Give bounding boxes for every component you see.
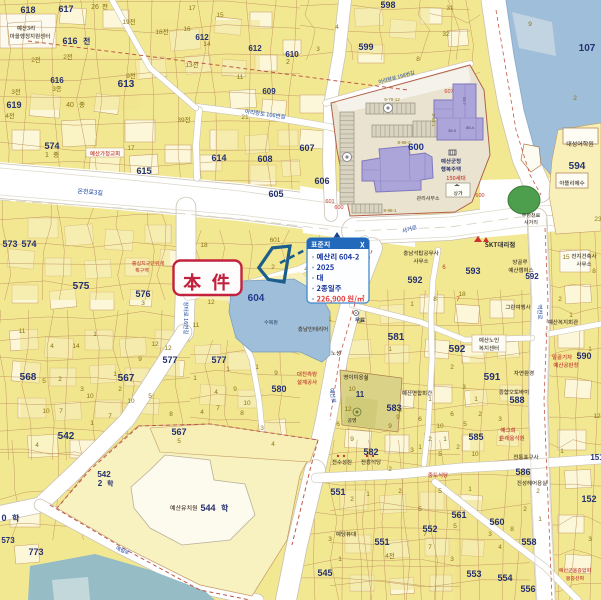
svg-text:10: 10 xyxy=(86,393,94,400)
svg-text:15: 15 xyxy=(216,12,224,19)
svg-text:9-79-12: 9-79-12 xyxy=(384,97,400,102)
svg-text:4: 4 xyxy=(335,24,339,31)
svg-text:6: 6 xyxy=(450,411,454,418)
svg-text:12: 12 xyxy=(151,341,159,348)
svg-text:8: 8 xyxy=(240,410,244,417)
svg-text:4: 4 xyxy=(35,442,39,449)
svg-text:11: 11 xyxy=(193,322,200,329)
svg-text:599: 599 xyxy=(358,42,373,52)
svg-text:5: 5 xyxy=(463,421,467,428)
svg-text:568: 568 xyxy=(20,372,37,383)
svg-text:592: 592 xyxy=(449,344,466,355)
svg-text:7: 7 xyxy=(59,408,63,415)
svg-text:616: 616 xyxy=(50,76,64,85)
svg-text:1: 1 xyxy=(45,152,49,159)
svg-text:567: 567 xyxy=(118,373,135,384)
svg-text:9: 9 xyxy=(528,21,532,28)
svg-text:1: 1 xyxy=(410,301,414,308)
svg-text:606: 606 xyxy=(314,176,329,186)
svg-text:9: 9 xyxy=(350,436,354,443)
svg-text:3: 3 xyxy=(410,447,414,454)
svg-text:613: 613 xyxy=(118,79,135,90)
svg-text:1: 1 xyxy=(428,396,432,403)
svg-text:4: 4 xyxy=(271,441,275,448)
svg-text:580: 580 xyxy=(271,384,286,394)
svg-text:8: 8 xyxy=(510,526,514,533)
svg-text:585: 585 xyxy=(468,432,483,442)
svg-text:3: 3 xyxy=(588,536,592,543)
svg-text:53.7: 53.7 xyxy=(462,97,467,106)
svg-text:19전: 19전 xyxy=(122,17,135,26)
svg-text:619: 619 xyxy=(6,100,21,110)
svg-text:17: 17 xyxy=(127,145,135,152)
svg-text:554: 554 xyxy=(497,573,512,583)
svg-text:8: 8 xyxy=(169,411,173,418)
svg-text:12: 12 xyxy=(344,406,352,413)
svg-text:8: 8 xyxy=(592,268,596,275)
svg-text:12: 12 xyxy=(164,345,172,352)
svg-text:12: 12 xyxy=(593,413,601,420)
svg-text:556: 556 xyxy=(520,584,535,594)
svg-text:1: 1 xyxy=(443,436,447,443)
svg-text:2: 2 xyxy=(573,95,577,102)
svg-text:1: 1 xyxy=(498,436,502,443)
svg-text:575: 575 xyxy=(73,281,90,292)
svg-text:3: 3 xyxy=(328,536,332,543)
svg-text:1: 1 xyxy=(418,444,422,451)
svg-text:604: 604 xyxy=(248,293,265,304)
svg-text:573: 573 xyxy=(1,536,15,545)
svg-text:39전: 39전 xyxy=(177,115,190,124)
svg-text:1: 1 xyxy=(193,375,197,382)
svg-text:588: 588 xyxy=(509,395,524,405)
svg-text:3: 3 xyxy=(488,531,492,538)
svg-text:4: 4 xyxy=(50,343,54,350)
svg-text:608: 608 xyxy=(257,154,272,164)
svg-text:3: 3 xyxy=(364,376,368,383)
svg-text:558: 558 xyxy=(521,537,536,547)
svg-text:592: 592 xyxy=(525,272,539,281)
svg-text:1: 1 xyxy=(474,396,478,403)
svg-text:18: 18 xyxy=(200,242,208,249)
svg-text:586: 586 xyxy=(515,467,530,477)
svg-text:2: 2 xyxy=(98,479,103,488)
svg-text:2: 2 xyxy=(286,59,290,66)
svg-text:9: 9 xyxy=(233,386,237,393)
svg-text:574: 574 xyxy=(21,239,36,249)
svg-text:542: 542 xyxy=(97,470,111,479)
svg-text:577: 577 xyxy=(211,355,226,365)
svg-text:609: 609 xyxy=(262,87,276,96)
svg-text:601: 601 xyxy=(325,199,334,205)
svg-text:573: 573 xyxy=(2,239,17,249)
svg-text:11: 11 xyxy=(356,390,365,399)
svg-text:6: 6 xyxy=(336,421,340,428)
svg-text:23: 23 xyxy=(594,216,601,223)
svg-text:2: 2 xyxy=(536,488,540,495)
svg-text:3: 3 xyxy=(450,556,454,563)
svg-text:617: 617 xyxy=(58,4,73,14)
svg-text:2전: 2전 xyxy=(63,52,73,61)
svg-text:3: 3 xyxy=(260,425,264,432)
svg-text:39.3: 39.3 xyxy=(448,128,457,133)
svg-text:3: 3 xyxy=(316,46,320,53)
svg-text:4: 4 xyxy=(498,544,502,551)
svg-text:553: 553 xyxy=(466,569,481,579)
svg-text:600: 600 xyxy=(475,193,484,199)
svg-text:2: 2 xyxy=(428,436,432,443)
svg-text:544: 544 xyxy=(200,503,215,513)
svg-text:593: 593 xyxy=(465,266,480,276)
svg-text:5: 5 xyxy=(418,506,422,513)
svg-text:2전: 2전 xyxy=(31,55,41,64)
svg-text:2: 2 xyxy=(450,364,454,371)
svg-text:2: 2 xyxy=(523,506,527,513)
svg-text:9전: 9전 xyxy=(126,71,136,80)
svg-text:551: 551 xyxy=(374,537,389,547)
svg-text:601: 601 xyxy=(270,237,281,244)
svg-text:21: 21 xyxy=(241,114,249,121)
svg-text:10: 10 xyxy=(42,408,50,415)
svg-text:2: 2 xyxy=(58,376,62,383)
svg-text:610: 610 xyxy=(285,50,299,59)
svg-text:1: 1 xyxy=(90,420,94,427)
svg-text:8-98-1: 8-98-1 xyxy=(383,208,397,213)
svg-text:3: 3 xyxy=(141,300,145,307)
svg-text:3: 3 xyxy=(80,386,84,393)
svg-text:1: 1 xyxy=(560,448,564,455)
svg-text:9: 9 xyxy=(396,414,400,421)
svg-text:542: 542 xyxy=(58,431,75,442)
svg-text:581: 581 xyxy=(388,332,405,343)
svg-text:607: 607 xyxy=(444,89,453,95)
svg-text:16: 16 xyxy=(183,26,191,33)
svg-text:2: 2 xyxy=(388,466,392,473)
svg-text:4전: 4전 xyxy=(385,551,395,560)
svg-text:40: 40 xyxy=(66,102,74,109)
svg-text:5: 5 xyxy=(438,488,442,495)
svg-text:2: 2 xyxy=(558,296,562,303)
svg-text:2: 2 xyxy=(118,386,122,393)
svg-text:1: 1 xyxy=(113,371,117,378)
svg-text:3전: 3전 xyxy=(11,87,21,96)
svg-text:7: 7 xyxy=(423,531,427,538)
svg-text:18전: 18전 xyxy=(155,27,168,36)
svg-text:10: 10 xyxy=(471,451,479,458)
svg-text:6: 6 xyxy=(418,416,422,423)
svg-text:10: 10 xyxy=(243,400,251,407)
svg-text:31: 31 xyxy=(446,5,454,12)
svg-text:14: 14 xyxy=(203,41,211,48)
svg-text:5: 5 xyxy=(453,523,457,530)
svg-text:576: 576 xyxy=(135,289,150,299)
svg-text:151: 151 xyxy=(590,453,601,462)
svg-text:616: 616 xyxy=(62,36,77,46)
svg-text:594: 594 xyxy=(569,161,586,172)
svg-text:10: 10 xyxy=(127,398,135,405)
svg-text:615: 615 xyxy=(136,166,151,176)
svg-text:2: 2 xyxy=(456,444,460,451)
svg-text:5: 5 xyxy=(148,393,152,400)
svg-text:1: 1 xyxy=(569,312,573,319)
svg-text:614: 614 xyxy=(211,153,226,163)
svg-text:1: 1 xyxy=(588,346,592,353)
svg-text:3: 3 xyxy=(462,384,466,391)
svg-text:1: 1 xyxy=(538,516,542,523)
svg-text:600: 600 xyxy=(334,205,343,211)
svg-text:598: 598 xyxy=(380,0,395,10)
svg-text:545: 545 xyxy=(317,568,332,578)
svg-text:12: 12 xyxy=(207,299,215,306)
svg-text:11: 11 xyxy=(237,74,244,81)
svg-text:2: 2 xyxy=(398,488,402,495)
svg-text:9: 9 xyxy=(274,370,278,377)
svg-text:2: 2 xyxy=(350,496,354,503)
svg-text:4: 4 xyxy=(200,409,204,416)
svg-text:5: 5 xyxy=(438,451,442,458)
svg-text:26: 26 xyxy=(91,4,99,11)
svg-text:1: 1 xyxy=(388,346,392,353)
svg-text:10: 10 xyxy=(436,423,444,430)
svg-text:5: 5 xyxy=(42,378,46,385)
svg-text:15: 15 xyxy=(562,254,570,261)
svg-text:8-98-2: 8-98-2 xyxy=(397,140,411,145)
svg-text:618: 618 xyxy=(20,5,35,15)
svg-text:773: 773 xyxy=(28,547,43,557)
svg-text:1: 1 xyxy=(468,486,472,493)
svg-text:9: 9 xyxy=(388,423,392,430)
svg-text:1: 1 xyxy=(328,316,332,323)
svg-text:607: 607 xyxy=(299,143,314,153)
svg-text:4: 4 xyxy=(214,389,218,396)
svg-text:1: 1 xyxy=(255,364,259,371)
svg-text:17: 17 xyxy=(188,5,196,12)
svg-text:13전: 13전 xyxy=(185,60,198,69)
svg-text:4전: 4전 xyxy=(5,111,15,120)
svg-text:612: 612 xyxy=(248,44,262,53)
svg-text:567: 567 xyxy=(171,427,186,437)
svg-text:561: 561 xyxy=(451,510,466,520)
svg-text:3종: 3종 xyxy=(52,85,62,93)
svg-text:152: 152 xyxy=(581,494,596,504)
svg-text:85.4: 85.4 xyxy=(466,125,475,130)
svg-text:32: 32 xyxy=(442,31,450,38)
svg-text:9: 9 xyxy=(138,356,142,363)
svg-text:8: 8 xyxy=(433,296,437,303)
svg-text:0: 0 xyxy=(1,513,6,523)
svg-text:7: 7 xyxy=(216,405,220,412)
svg-text:10: 10 xyxy=(348,386,356,393)
svg-text:577: 577 xyxy=(162,355,177,365)
svg-text:2-98-1: 2-98-1 xyxy=(431,113,436,127)
svg-text:1: 1 xyxy=(338,556,342,563)
svg-text:11: 11 xyxy=(19,328,26,335)
svg-text:2: 2 xyxy=(478,411,482,418)
svg-text:7: 7 xyxy=(108,413,112,420)
svg-text:107: 107 xyxy=(579,43,596,54)
svg-text:591: 591 xyxy=(484,372,501,383)
svg-text:14: 14 xyxy=(72,343,80,350)
svg-text:574: 574 xyxy=(44,141,59,151)
svg-text:7: 7 xyxy=(428,544,432,551)
svg-text:592: 592 xyxy=(407,275,422,285)
svg-text:551: 551 xyxy=(330,487,345,497)
svg-text:605: 605 xyxy=(268,189,283,199)
svg-text:8: 8 xyxy=(398,407,402,414)
svg-text:560: 560 xyxy=(489,517,504,527)
svg-text:8: 8 xyxy=(416,56,420,63)
svg-text:1: 1 xyxy=(226,366,230,373)
svg-text:5: 5 xyxy=(177,438,181,445)
svg-text:2: 2 xyxy=(271,264,275,271)
svg-text:3: 3 xyxy=(498,416,502,423)
svg-text:582: 582 xyxy=(363,447,378,457)
svg-text:1: 1 xyxy=(366,491,370,498)
svg-text:1: 1 xyxy=(93,331,97,338)
